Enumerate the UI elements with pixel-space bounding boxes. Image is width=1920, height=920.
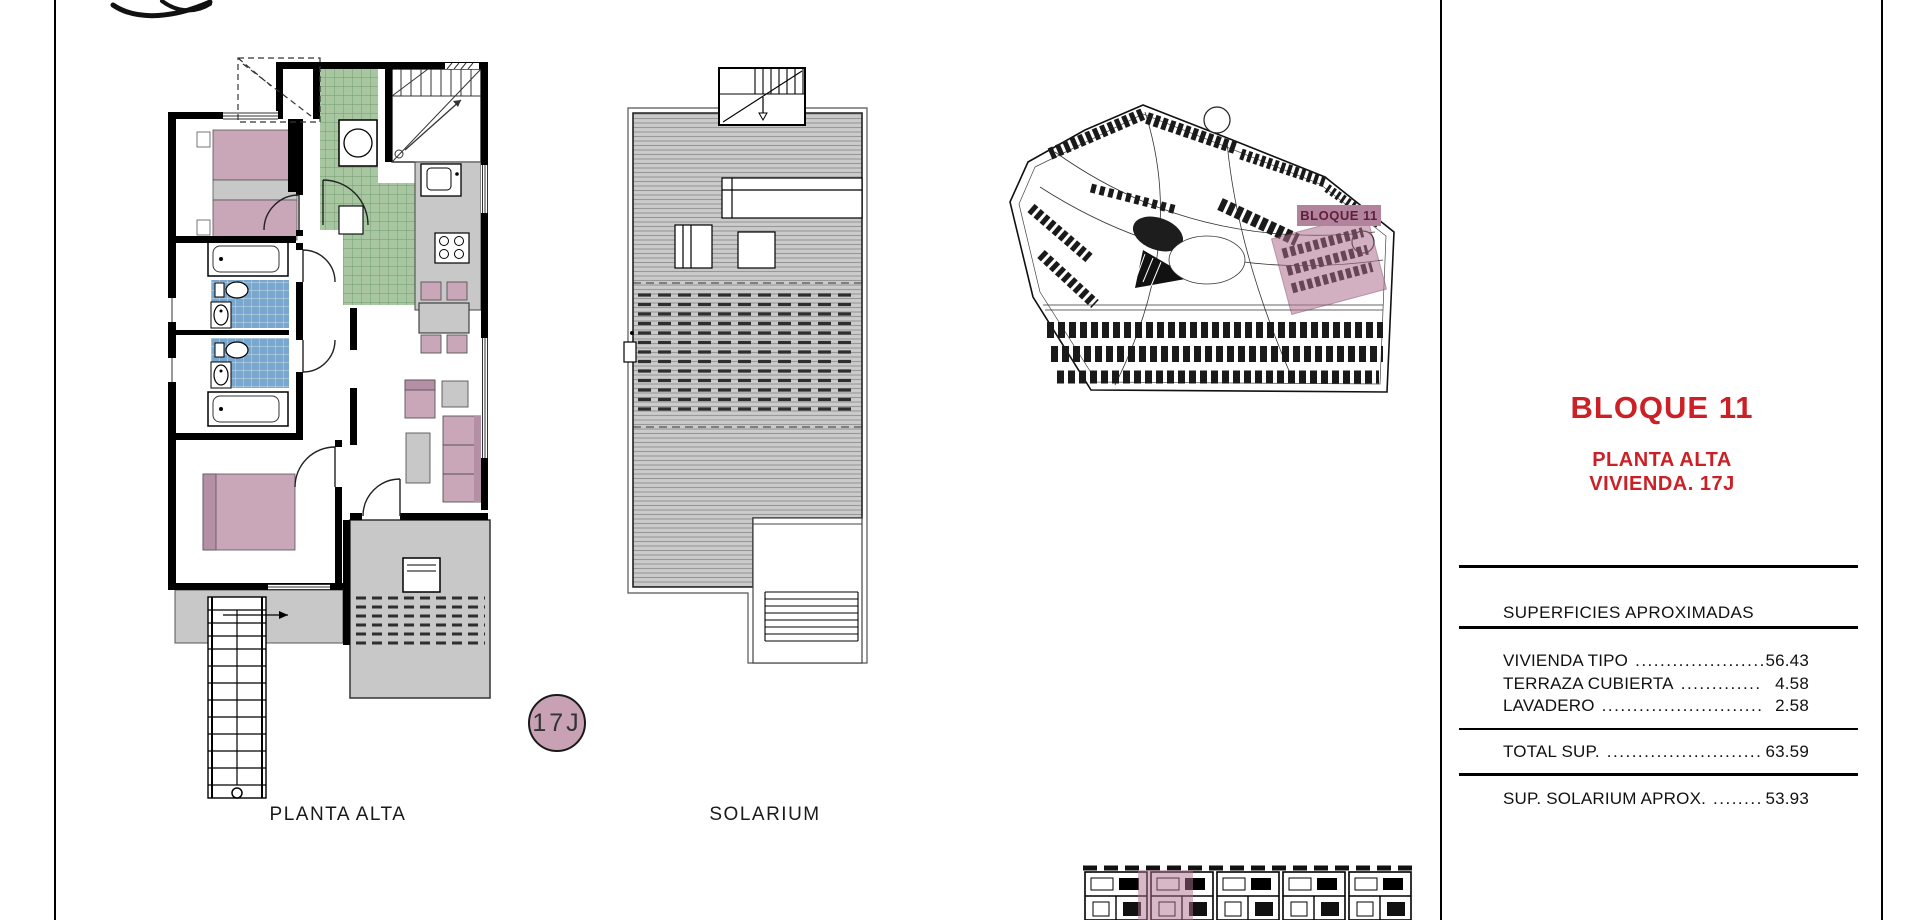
washing-machine-icon: [339, 120, 377, 166]
stairwell-void: [392, 69, 481, 162]
leader-dots: ....................................: [1595, 696, 1763, 716]
leader-dots: ..........................: [1628, 651, 1763, 671]
key-plan-strip: [1075, 862, 1420, 920]
panel-rule-3: [1459, 728, 1858, 730]
apartment-floor-plan: [163, 50, 493, 805]
total-row-value: 63.59: [1763, 742, 1809, 762]
panel-rule-2: [1459, 626, 1858, 629]
solarium-lower-stairs: [753, 518, 862, 663]
info-panel: BLOQUE 11 PLANTA ALTA VIVIENDA. 17J SUPE…: [1441, 0, 1883, 920]
panel-rule-1: [1459, 565, 1858, 568]
surface-row-value: 4.58: [1763, 674, 1809, 694]
surface-row-value: 2.58: [1763, 696, 1809, 716]
solarium-row-label: SUP. SOLARIUM APROX.: [1503, 789, 1706, 809]
leader-dots: ................................: [1600, 742, 1763, 762]
planta-alta-caption: PLANTA ALTA: [238, 804, 438, 826]
surfaces-header: SUPERFICIES APROXIMADAS: [1503, 603, 1754, 623]
surface-row: TERRAZA CUBIERTA ................... 4.5…: [1503, 674, 1809, 694]
bedroom2-bed: [203, 474, 295, 550]
panel-rule-4: [1459, 773, 1858, 776]
total-row-label: TOTAL SUP.: [1503, 742, 1600, 762]
site-plan: [995, 92, 1405, 417]
bathroom2: [208, 338, 289, 426]
key-plan-highlight: [1138, 870, 1193, 920]
bloque11-highlight: [1272, 214, 1387, 315]
site-plan-block-tag: BLOQUE 11: [1297, 205, 1381, 226]
panel-subtitle-1: PLANTA ALTA: [1441, 449, 1883, 472]
solarium-caption: SOLARIUM: [665, 804, 865, 826]
surface-row-label: LAVADERO: [1503, 696, 1595, 716]
solarium-row: SUP. SOLARIUM APROX. ......... 53.93: [1503, 789, 1809, 809]
leader-dots: ...................: [1674, 674, 1763, 694]
plan-sheet: BLOQUE 11: [0, 0, 1920, 920]
page-border-left: [54, 0, 56, 920]
bathroom1: [208, 242, 289, 328]
surface-row-value: 56.43: [1763, 651, 1809, 671]
panel-title: BLOQUE 11: [1441, 390, 1883, 426]
total-row: TOTAL SUP. .............................…: [1503, 742, 1809, 762]
solarium-row-value: 53.93: [1763, 789, 1809, 809]
surface-row: VIVIENDA TIPO ..........................…: [1503, 651, 1809, 671]
unit-badge: 17J: [528, 694, 586, 752]
key-plan-units: [1085, 872, 1411, 920]
surface-row: LAVADERO ...............................…: [1503, 696, 1809, 716]
bedroom1-bed: [197, 130, 297, 240]
solarium-stair-bulkhead: [719, 68, 805, 125]
logo-swoosh-icon: [110, 0, 220, 20]
living-room-furniture: [405, 380, 481, 502]
panel-subtitle-2: VIVIENDA. 17J: [1441, 473, 1883, 496]
leader-dots: .........: [1706, 789, 1763, 809]
solarium-plan: [620, 50, 875, 715]
surface-row-label: VIVIENDA TIPO: [1503, 651, 1628, 671]
surface-row-label: TERRAZA CUBIERTA: [1503, 674, 1674, 694]
